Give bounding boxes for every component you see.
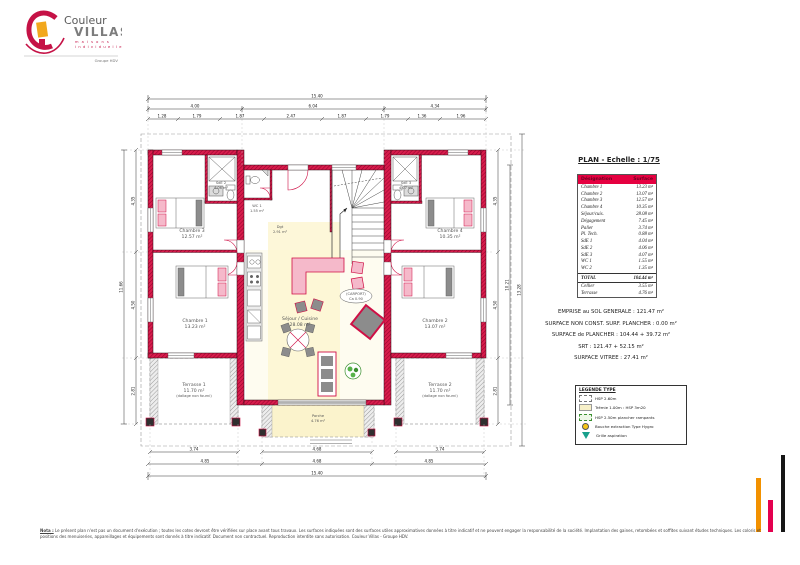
plan-scale-title: PLAN - Echelle : 1/75 xyxy=(560,156,678,164)
table-row: Chambre 410.35 m² xyxy=(578,204,656,211)
svg-text:Chambre 1: Chambre 1 xyxy=(182,318,207,324)
legend-title: LEGENDE TYPE xyxy=(579,388,683,393)
svg-text:4.35: 4.35 xyxy=(131,196,136,205)
table-row: WC 11.55 m² xyxy=(578,259,656,266)
table-row: WC 21.35 m² xyxy=(578,265,656,272)
svg-text:2.91 m²: 2.91 m² xyxy=(273,230,288,234)
table-row: Cellier3.55 m² xyxy=(578,283,656,290)
table-row: Terrasse4.76 m² xyxy=(578,290,656,297)
area-table-header: Désignation Surface xyxy=(578,175,656,184)
surface-line: SURFACE de PLANCHER : 104.44 + 39.72 m² xyxy=(533,330,689,342)
stairs-arrow xyxy=(344,208,348,213)
surface-line: EMPRISE au SOL GENERALE : 121.47 m² xyxy=(533,307,689,319)
legend-swatch-green-dash xyxy=(579,414,592,421)
table-row: Séjour/cuis.28.08 m² xyxy=(578,211,656,218)
armchair-pink xyxy=(351,277,364,290)
svg-text:4.76 m²: 4.76 m² xyxy=(311,419,326,423)
svg-text:3.74: 3.74 xyxy=(190,447,199,452)
surface-line: SURFACE NON CONST. SURF. PLANCHER : 0.00… xyxy=(533,319,689,331)
nota-line1: Le présent plan n'est pas un document d'… xyxy=(55,528,733,533)
carport-callout: (CARPORT) Ca 0.90 xyxy=(340,289,372,303)
legend-swatch-cream xyxy=(579,404,592,411)
surface-summary: EMPRISE au SOL GENERALE : 121.47 m² SURF… xyxy=(533,307,689,365)
table-row: SdE 34.07 m² xyxy=(578,252,656,259)
svg-text:11.66: 11.66 xyxy=(119,281,124,293)
logo-orange-brush xyxy=(36,21,48,37)
extraction-icon xyxy=(582,423,589,430)
svg-text:i n d i v i d u e l l e s: i n d i v i d u e l l e s xyxy=(75,45,122,49)
svg-text:1.36: 1.36 xyxy=(418,114,427,119)
svg-text:1.87: 1.87 xyxy=(338,114,347,119)
svg-text:4.00: 4.00 xyxy=(191,104,200,109)
svg-text:1.55 m²: 1.55 m² xyxy=(250,209,265,213)
svg-text:10.21: 10.21 xyxy=(505,279,510,291)
svg-text:Terrasse 2: Terrasse 2 xyxy=(427,382,451,388)
armchair-pink xyxy=(351,261,363,273)
logo: Couleur VILLAS m a i s o n s i n d i v i… xyxy=(22,6,122,68)
svg-text:Séjour / Cuisine: Séjour / Cuisine xyxy=(282,315,318,322)
legend-swatch-dashed xyxy=(579,395,592,402)
svg-text:13.23 m²: 13.23 m² xyxy=(185,324,206,330)
armchair-gray xyxy=(295,301,307,313)
room-label: Chambre 3 xyxy=(179,228,204,234)
legend-item: HSP 2.50m plancher rampants xyxy=(579,414,683,421)
svg-text:2.81: 2.81 xyxy=(131,386,136,395)
svg-text:12.57 m²: 12.57 m² xyxy=(182,234,203,240)
table-row: Dégagement7.45 m² xyxy=(578,218,656,225)
svg-text:4.85: 4.85 xyxy=(201,459,210,464)
svg-text:4.68: 4.68 xyxy=(313,447,322,452)
table-row: Chambre 113.23 m² xyxy=(578,184,656,191)
svg-text:Chambre 2: Chambre 2 xyxy=(422,318,447,324)
svg-text:13.28: 13.28 xyxy=(517,284,522,296)
table-total-row: TOTAL104.44 m² xyxy=(578,273,656,283)
svg-text:4.68: 4.68 xyxy=(313,459,322,464)
svg-text:Chambre 4: Chambre 4 xyxy=(437,228,462,234)
legend-item: Bouche extraction Type Hygro xyxy=(579,423,683,430)
terrace-post xyxy=(232,418,240,426)
surface-line: SRT : 121.47 + 52.15 m² xyxy=(533,342,689,354)
kitchen-counter xyxy=(246,253,262,341)
svg-text:Ca 0.90: Ca 0.90 xyxy=(349,297,364,301)
svg-text:(dallage non fourni): (dallage non fourni) xyxy=(176,394,212,398)
svg-text:1.28: 1.28 xyxy=(158,114,167,119)
logo-group-name: Groupe HDV xyxy=(95,58,119,63)
svg-text:6.04: 6.04 xyxy=(309,104,318,109)
brand-bar-pink xyxy=(768,500,773,532)
svg-text:2.47: 2.47 xyxy=(287,114,296,119)
legend-box: LEGENDE TYPE HSP 2.60m Trémie 1.00m : HS… xyxy=(575,385,687,445)
legend-item: Trémie 1.00m : HSP 3m20 xyxy=(579,404,683,411)
svg-text:13.07 m²: 13.07 m² xyxy=(425,324,446,330)
svg-text:15.40: 15.40 xyxy=(311,94,323,99)
table-row: SdE 24.06 m² xyxy=(578,245,656,252)
svg-text:4.06 m²: 4.06 m² xyxy=(214,186,229,190)
aspiration-icon xyxy=(582,432,590,439)
svg-text:WC 1: WC 1 xyxy=(252,204,262,208)
legend-item: HSP 2.60m xyxy=(579,395,683,402)
brand-bar-orange xyxy=(756,478,761,532)
terrace-post xyxy=(394,418,402,426)
floor-plan-drawing: (CARPORT) Ca 0.90 Chambre 3 12.57 m² SdE… xyxy=(0,0,800,565)
svg-text:4.85: 4.85 xyxy=(425,459,434,464)
svg-text:4.34: 4.34 xyxy=(431,104,440,109)
svg-text:4.35: 4.35 xyxy=(493,196,498,205)
porch xyxy=(259,405,375,444)
porch-steps xyxy=(310,440,352,444)
table-row: Pl. Tech.0.88 m² xyxy=(578,231,656,238)
svg-text:4.07 m²: 4.07 m² xyxy=(399,186,414,190)
svg-text:10.35 m²: 10.35 m² xyxy=(440,234,461,240)
svg-text:Porche: Porche xyxy=(312,414,325,418)
svg-text:Dgt: Dgt xyxy=(277,225,284,229)
logo-graphic: Couleur VILLAS m a i s o n s i n d i v i… xyxy=(22,6,122,68)
surface-line: SURFACE VITREE : 27.41 m² xyxy=(533,353,689,365)
table-row: Chambre 213.07 m² xyxy=(578,191,656,198)
svg-text:1.87: 1.87 xyxy=(236,114,245,119)
area-table: Désignation Surface Chambre 113.23 m² Ch… xyxy=(577,174,657,298)
svg-text:4.50: 4.50 xyxy=(131,300,136,309)
svg-text:SdE 2: SdE 2 xyxy=(216,181,226,185)
svg-text:Terrasse 1: Terrasse 1 xyxy=(181,382,205,388)
stairs xyxy=(332,170,384,264)
plan-sheet: { "colors":{"wall_crimson":"#d81c4c","wa… xyxy=(0,0,800,565)
table-row: Palier3.74 m² xyxy=(578,225,656,232)
legend-item: Grille aspiration xyxy=(579,432,683,439)
table-row: Chambre 312.57 m² xyxy=(578,198,656,205)
logo-brand-bottom: VILLAS xyxy=(74,25,122,39)
carport-label: (CARPORT) xyxy=(346,292,366,296)
svg-text:1.79: 1.79 xyxy=(381,114,390,119)
brand-bar-black xyxy=(781,455,785,532)
table-row: SdE 14.04 m² xyxy=(578,238,656,245)
svg-text:1.96: 1.96 xyxy=(457,114,466,119)
svg-text:3.74: 3.74 xyxy=(436,447,445,452)
svg-text:1.79: 1.79 xyxy=(193,114,202,119)
footer-disclaimer: Nota : Le présent plan n'est pas un docu… xyxy=(40,528,764,539)
svg-text:2.81: 2.81 xyxy=(493,386,498,395)
svg-text:(dallage non fourni): (dallage non fourni) xyxy=(422,394,458,398)
svg-text:4.50: 4.50 xyxy=(493,300,498,309)
svg-text:m a i s o n s: m a i s o n s xyxy=(75,40,110,44)
svg-text:15.40: 15.40 xyxy=(311,471,323,476)
nota-label: Nota : xyxy=(40,528,54,533)
svg-text:28.08 m²: 28.08 m² xyxy=(290,322,311,328)
svg-text:SdE 3: SdE 3 xyxy=(401,181,411,185)
